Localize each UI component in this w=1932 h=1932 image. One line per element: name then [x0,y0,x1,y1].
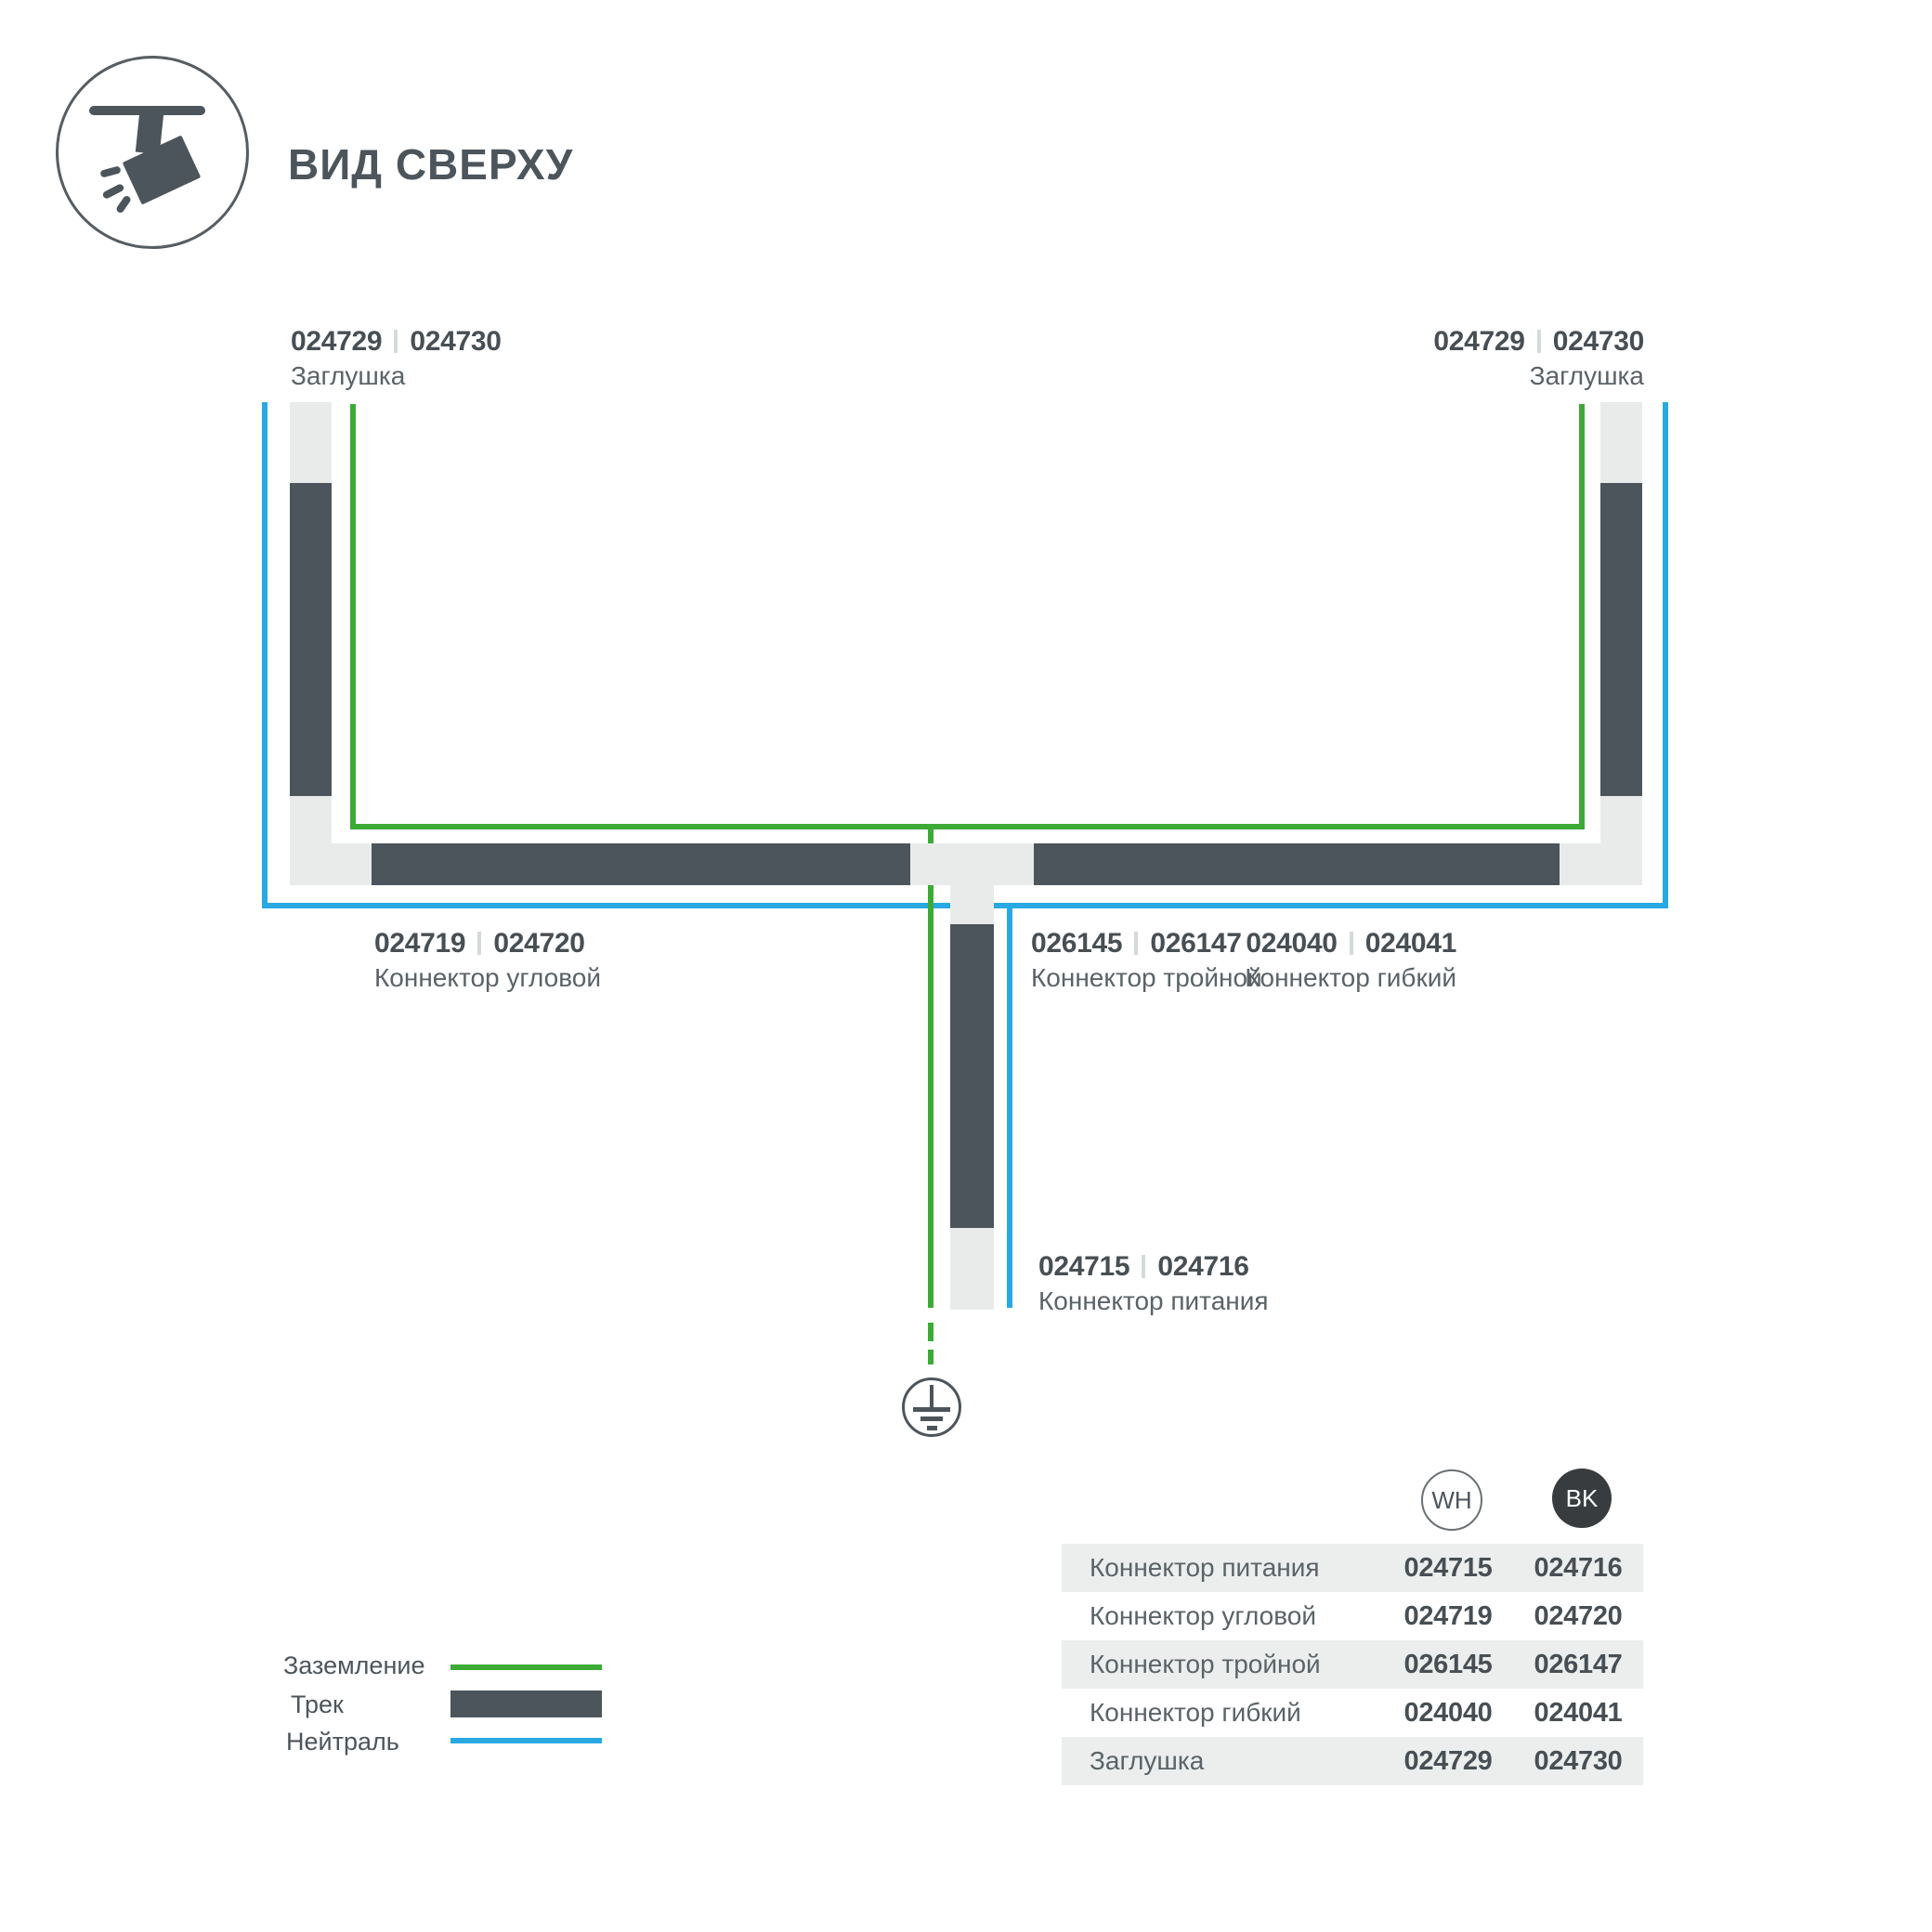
row-code-wh: 024729 [1383,1746,1513,1777]
legend-ground-swatch [450,1664,602,1670]
triple-connector [910,843,1034,885]
legend-label-track: Трек [291,1690,344,1719]
code-bk: 026147 [1150,928,1241,959]
row-code-bk: 024730 [1513,1746,1643,1777]
ground-line-right [1579,404,1585,829]
row-label: Заглушка [1062,1746,1383,1776]
part-name: Заглушка [1433,360,1644,392]
part-name: Коннектор тройной [1031,962,1262,994]
track-segment-left [290,483,332,796]
row-code-wh: 024040 [1383,1698,1513,1729]
top-view-icon [56,56,249,249]
row-code-wh: 024719 [1383,1601,1513,1632]
endcap-left [290,402,332,483]
row-code-bk: 024041 [1513,1698,1643,1729]
spotlight-body-icon [123,136,202,205]
code-wh: 024715 [1038,1251,1129,1282]
code-bk: 024720 [493,928,584,959]
part-codes: 024729024730 [1433,325,1644,359]
code-separator [1134,932,1138,955]
part-codes: 024719024720 [374,927,601,960]
track-segment-feed [950,924,994,1228]
code-wh: 024729 [1433,326,1524,357]
page-title: ВИД СВЕРХУ [288,139,573,189]
infographic-canvas: ВИД СВЕРХУ 024729024730 Заглушка 0247290… [0,0,1932,1932]
code-wh: 026145 [1031,928,1122,959]
light-ray-icon [115,195,132,215]
legend-label-neutral: Нейтраль [286,1728,399,1756]
column-badge-label: BK [1566,1484,1599,1513]
endcap-right [1600,402,1642,483]
earth-stem [930,1385,933,1410]
row-code-wh: 026145 [1383,1650,1513,1680]
label-power-connector: 024715024716 Коннектор питания [1038,1250,1269,1317]
legend-label-ground: Заземление [283,1651,424,1680]
light-ray-icon [101,183,124,200]
part-name: Коннектор угловой [374,962,601,994]
column-badge-label: WH [1431,1486,1471,1515]
earth-ground-icon [902,1377,961,1437]
code-separator [1142,1255,1145,1278]
row-label: Коннектор угловой [1062,1601,1383,1631]
part-name: Заглушка [291,360,502,392]
code-wh: 024040 [1246,928,1337,959]
ground-line-dash [928,1350,933,1364]
label-endcap-right: 024729024730 Заглушка [1433,325,1644,392]
parts-table: Коннектор питания 024715 024716 Коннекто… [1062,1544,1643,1785]
row-code-bk: 024720 [1513,1601,1643,1632]
code-bk: 024716 [1157,1251,1248,1282]
code-separator [1537,330,1541,353]
table-row: Заглушка 024729 024730 [1062,1737,1643,1785]
table-row: Коннектор питания 024715 024716 [1062,1544,1643,1592]
ground-line-feed [928,824,933,1308]
part-name: Коннектор питания [1038,1286,1269,1317]
ground-line-dash [928,1323,933,1341]
power-connector [950,1228,994,1310]
track-segment-top-left [372,843,910,885]
code-bk: 024730 [1553,326,1644,357]
code-separator [477,932,481,955]
part-codes: 024715024716 [1038,1250,1269,1284]
earth-bar [920,1416,943,1421]
earth-bar [913,1407,950,1412]
corner-connector-left [290,843,372,885]
track-segment-top-right [1034,843,1560,885]
part-name: Коннектор гибкий [1245,962,1456,994]
table-row: Коннектор тройной 026145 026147 [1062,1640,1643,1689]
legend-neutral-swatch [450,1738,602,1743]
column-badge-white: WH [1421,1469,1482,1531]
label-triple-connector: 026145026147 Коннектор тройной [1031,927,1262,994]
neutral-line-right [1663,402,1668,908]
part-codes: 026145026147 [1031,927,1262,960]
label-endcap-left: 024729024730 Заглушка [291,325,502,392]
legend-track-swatch [450,1690,602,1717]
row-code-wh: 024715 [1383,1553,1513,1584]
light-ray-icon [99,165,121,177]
track-segment-right [1600,483,1642,796]
ground-line-top [350,824,1585,829]
code-wh: 024719 [374,928,465,959]
row-label: Коннектор гибкий [1062,1698,1383,1728]
neutral-line-feed [1007,903,1012,1308]
code-separator [394,330,398,353]
ground-line-left [350,404,356,829]
code-bk: 024041 [1365,928,1456,959]
row-code-bk: 026147 [1513,1650,1643,1680]
row-label: Коннектор питания [1062,1553,1383,1583]
part-codes: 024040024041 [1245,927,1456,960]
neutral-line-left [262,402,268,908]
table-row: Коннектор гибкий 024040 024041 [1062,1689,1643,1737]
code-wh: 024729 [291,326,382,357]
earth-bar [927,1426,937,1430]
row-label: Коннектор тройной [1062,1650,1383,1679]
label-flex-connector: 024040024041 Коннектор гибкий [1245,927,1456,994]
label-corner-connector: 024719024720 Коннектор угловой [374,927,601,994]
corner-connector-right [1560,843,1642,885]
row-code-bk: 024716 [1513,1553,1643,1584]
column-badge-black: BK [1552,1469,1612,1528]
code-bk: 024730 [410,326,501,357]
table-row: Коннектор угловой 024719 024720 [1062,1592,1643,1640]
triple-connector [950,885,994,924]
code-separator [1350,932,1353,955]
part-codes: 024729024730 [291,325,502,359]
